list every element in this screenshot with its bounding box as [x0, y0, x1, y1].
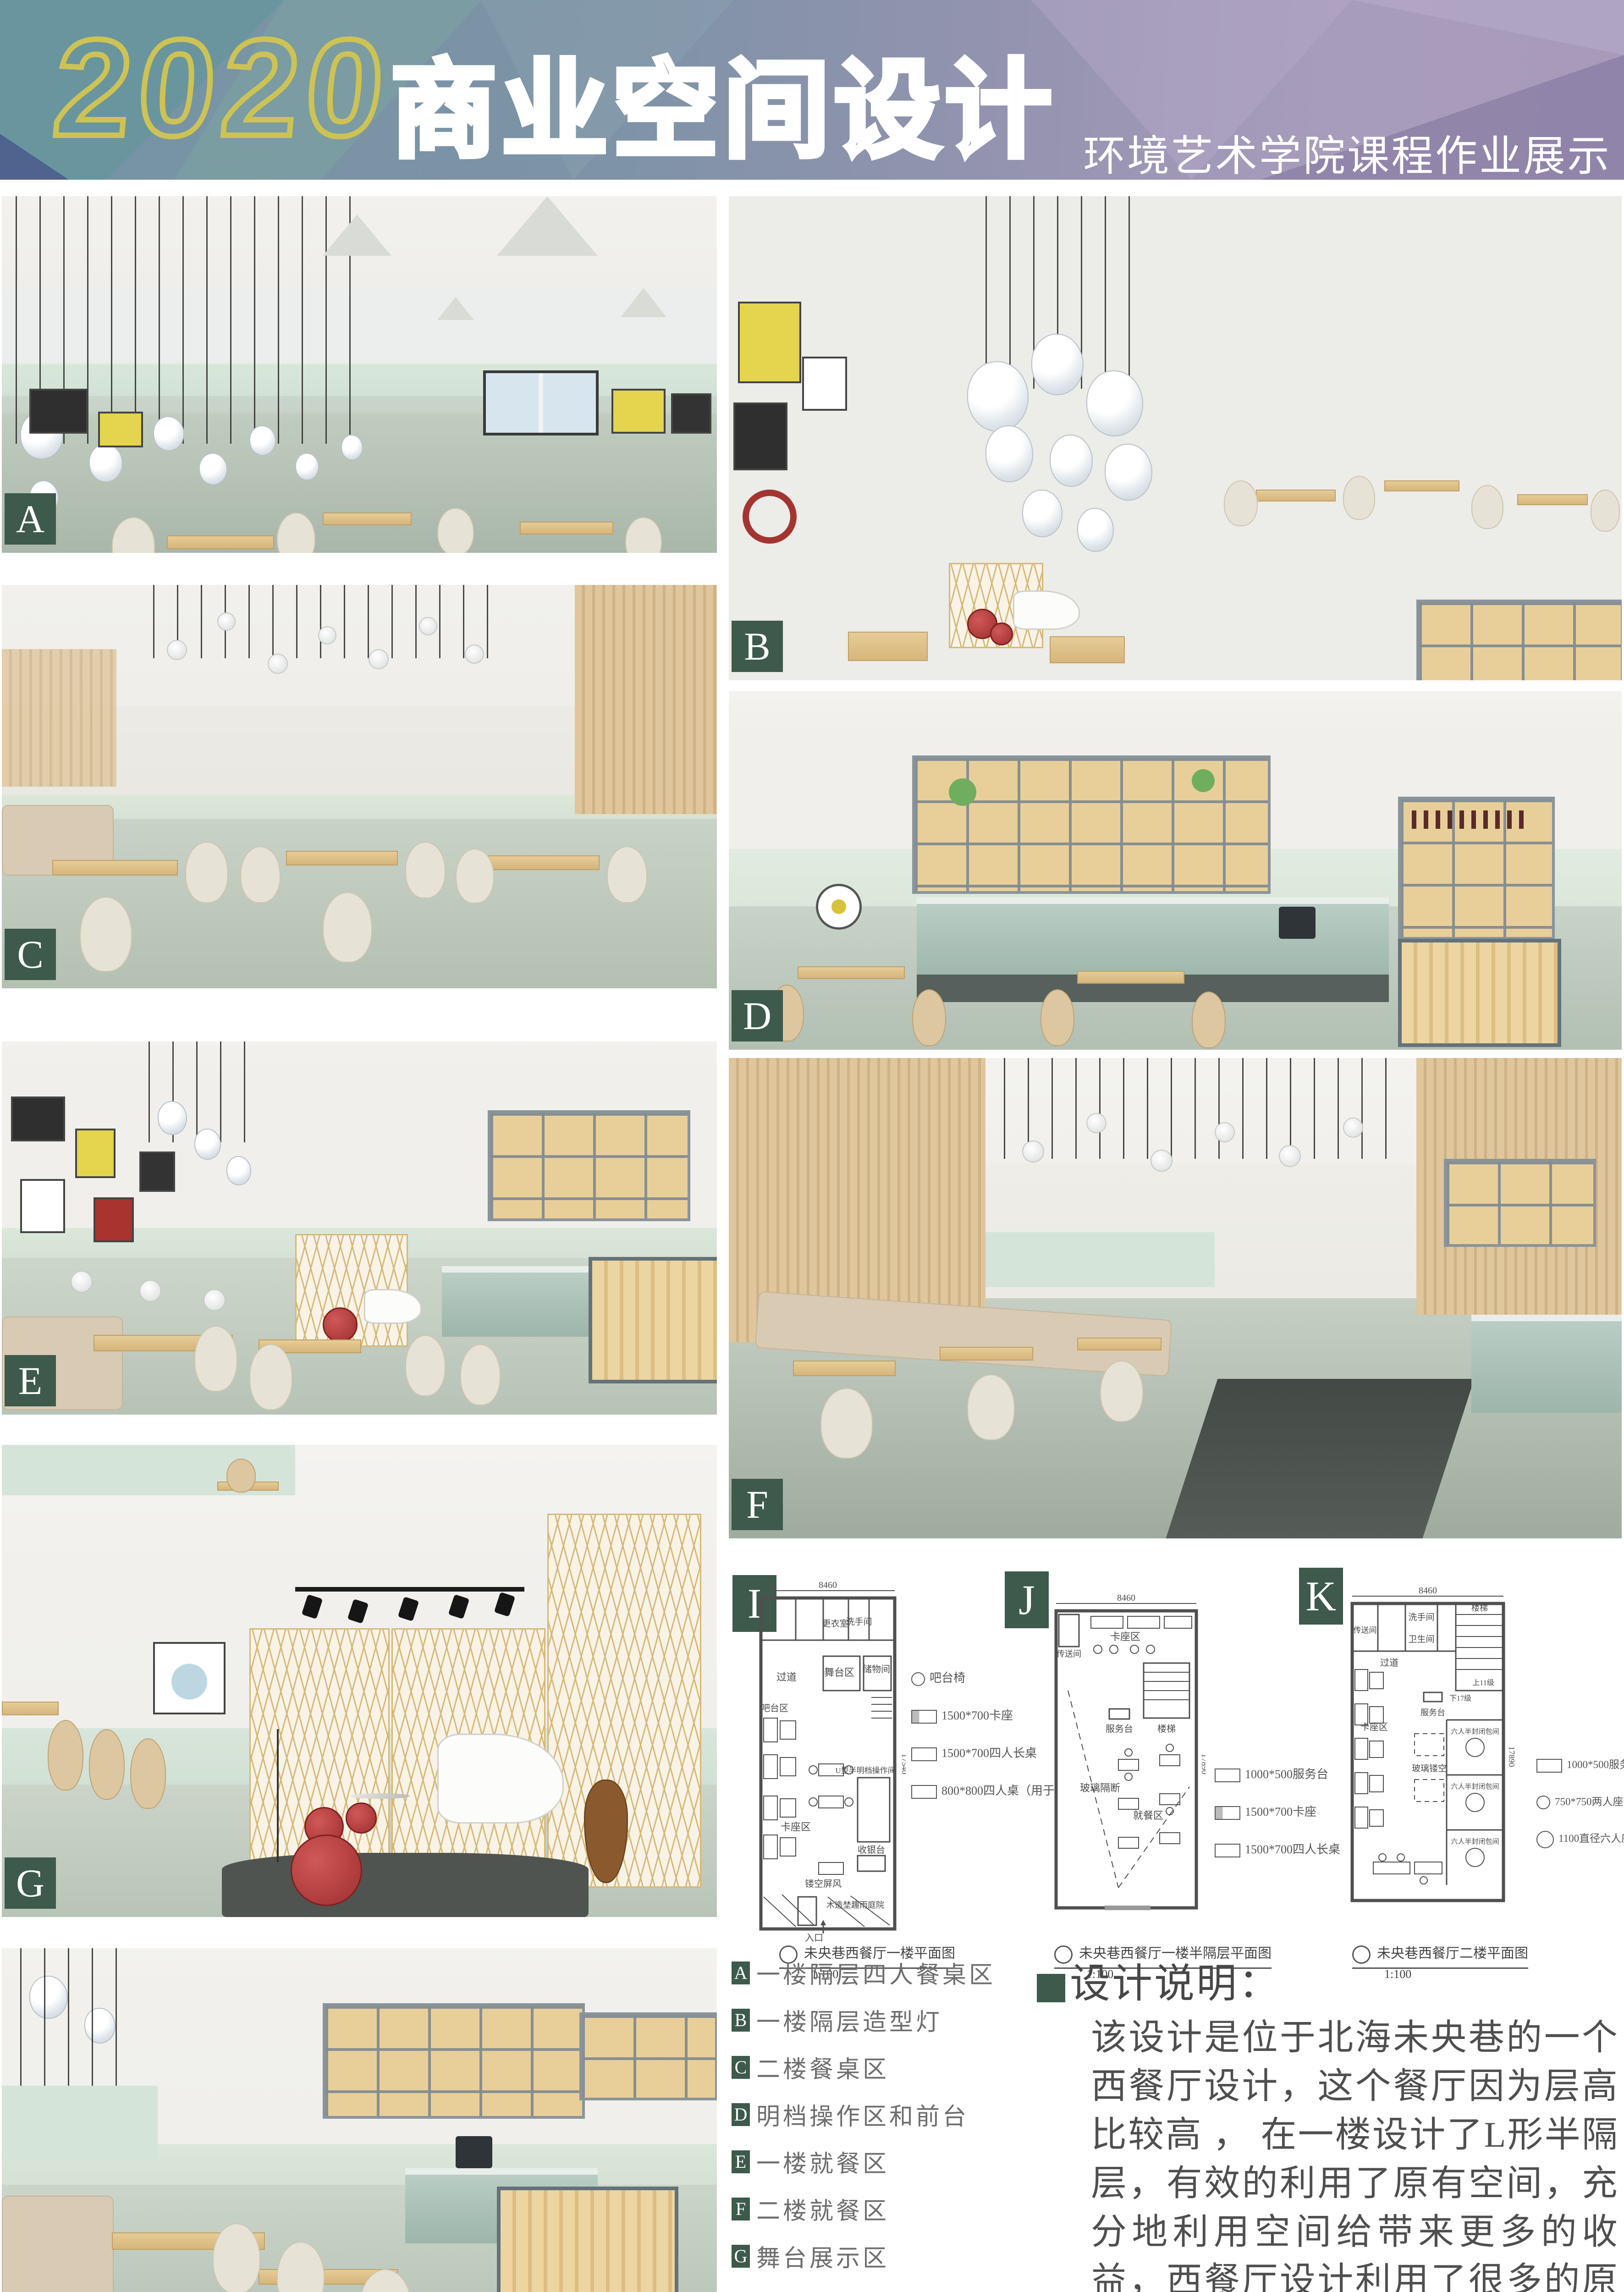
dining-chair	[456, 848, 494, 904]
grand-piano	[364, 1289, 422, 1324]
render-photo-b: B	[729, 196, 1622, 680]
table-icon	[911, 1747, 937, 1761]
crystal-pendant	[341, 435, 363, 460]
legend-row: H一楼就餐区	[732, 2286, 1025, 2292]
track-light-bar	[295, 1587, 524, 1592]
crystal-pendant-lamp	[1086, 370, 1143, 436]
bar-stool	[1192, 992, 1226, 1048]
bar-stool	[912, 989, 946, 1046]
room-label: 六人半封闭包间	[1451, 1728, 1499, 1736]
mezzanine-table	[1256, 490, 1336, 501]
bar-stool	[1040, 989, 1074, 1046]
bar-table	[2, 1702, 59, 1715]
exhibition-poster: 2020 商业空间设计 环境艺术学院课程作业展示	[0, 0, 1624, 2292]
dining-chair	[967, 1374, 1015, 1440]
wall-clock	[816, 884, 862, 930]
legend-text: 一楼隔层造型灯	[756, 2003, 942, 2037]
panel-label-b: B	[732, 621, 783, 672]
dining-chair	[625, 517, 662, 553]
legend-row: F二楼就餐区	[732, 2192, 1025, 2226]
room-label: 洗手间	[846, 1617, 872, 1627]
wall-frame	[11, 1096, 65, 1141]
bar-stool	[48, 1720, 83, 1791]
furniture-item: 1500*700卡座	[911, 1706, 1055, 1724]
round-pendant-bulb	[1279, 1145, 1301, 1167]
tom-drum	[346, 1802, 377, 1834]
wall-frame	[671, 393, 711, 434]
design-notes-body: 该设计是位于北海未央巷的一个西餐厅设计，这个餐厅因为层高比较高 ， 在一楼设计了…	[1091, 2013, 1618, 2292]
drum-kit	[323, 1307, 358, 1342]
mezzanine-scene	[729, 196, 1622, 680]
high-table	[798, 966, 905, 979]
hanging-shelf-unit	[912, 755, 1271, 894]
wood-slat-partition	[2, 649, 116, 787]
floor-plan-k-drawing: 8460 17890 过道 洗手间 卫生间 传送间 卡座区 玻璃镂空 六人半封闭…	[1346, 1587, 1529, 1926]
dining-room-scene	[2, 196, 717, 553]
room-label: 收银台	[858, 1845, 885, 1855]
room-label: 六人半封闭包间	[1451, 1783, 1499, 1791]
furniture-item: 1500*700四人长桌	[1215, 1840, 1340, 1857]
mint-wall-panel	[985, 1232, 1215, 1287]
dining-chair	[405, 1335, 446, 1396]
room-label: 传送间	[1354, 1626, 1377, 1635]
bar-stool	[130, 1738, 166, 1809]
crystal-pendant-lamp	[1105, 444, 1152, 501]
cone-ceiling-lamp-icon	[437, 297, 474, 320]
crystal-pendant	[153, 416, 184, 451]
crystal-pendant	[249, 425, 276, 456]
dining-chair	[1471, 485, 1503, 529]
render-photo-c: C	[2, 585, 717, 988]
dining-table	[323, 512, 412, 525]
dining-table	[52, 860, 178, 876]
round-pendant-bulb	[1215, 1122, 1235, 1142]
furniture-item: 1000*500服务台	[1536, 1756, 1624, 1773]
dim-side: 17890	[1507, 1747, 1516, 1767]
chandelier-bulb	[167, 640, 187, 660]
render-photo-g: G	[2, 1445, 717, 1917]
wall-frame	[98, 412, 143, 447]
first-floor-table	[1050, 636, 1125, 663]
mezzanine-chair	[226, 1459, 256, 1493]
dining-chair	[240, 846, 281, 903]
table-icon	[1215, 1844, 1240, 1857]
wall-sconce-lamp	[204, 1289, 226, 1311]
wall-frame	[94, 1197, 134, 1242]
crystal-pendant-lamp	[1050, 435, 1093, 487]
mezzanine-table	[1517, 494, 1588, 505]
pos-terminal	[1279, 907, 1316, 939]
legend-row: E一楼就餐区	[732, 2144, 1025, 2179]
room-label: 玻璃镂空	[1412, 1763, 1447, 1774]
dining-chair	[607, 846, 647, 903]
room-label: 洗手间	[1408, 1612, 1434, 1622]
round-pendant-bulb	[1086, 1113, 1107, 1133]
wood-slat-wall	[575, 585, 717, 814]
room-label: 楼梯	[1157, 1724, 1176, 1734]
panel-label-e: E	[5, 1355, 56, 1406]
dining-chair	[80, 897, 132, 972]
dining-chair	[277, 2242, 325, 2292]
crystal-pendant-lamp	[985, 425, 1033, 482]
room-label: 更衣室	[822, 1619, 848, 1629]
floor-plan-i-drawing: 8460 17540 过道 舞台区 储物间 吧台区 卡座区 U型半明档操作间 收…	[754, 1581, 906, 1943]
shelf-unit	[1416, 600, 1622, 680]
room-label: 卫生间	[1408, 1634, 1434, 1644]
counter-icon	[1215, 1769, 1240, 1782]
render-photo-a: A	[2, 196, 717, 553]
spotlight-icon	[398, 1597, 419, 1621]
bar-stool	[89, 1729, 125, 1800]
cone-ceiling-lamp-icon	[621, 288, 666, 317]
banquette-sofa	[2, 2196, 114, 2292]
two-seat-icon	[1536, 1796, 1550, 1809]
dim-side: 17540	[900, 1754, 906, 1774]
dining-table	[520, 522, 613, 534]
panel-label-f: F	[732, 1479, 783, 1530]
wall-sconce-lamp	[139, 1280, 161, 1302]
render-photo-d: D	[729, 691, 1622, 1050]
plan-k-furniture-legend: 1000*500服务台 750*750两人座 1100直径六人座	[1536, 1756, 1624, 1868]
plan-j-furniture-legend: 1000*500服务台 1500*700卡座 1500*700四人长桌	[1215, 1765, 1340, 1878]
panel-label-c: C	[5, 929, 56, 980]
front-cabinet	[589, 1257, 717, 1383]
render-photo-e: E	[2, 1041, 717, 1415]
first-floor-table	[848, 632, 928, 661]
round-table-icon	[1536, 1831, 1554, 1848]
dining-chair	[1100, 1361, 1143, 1422]
room-label: 入口	[805, 1933, 823, 1943]
drum-kit	[990, 623, 1013, 645]
dark-floor-tiles	[1166, 1379, 1474, 1538]
room-label: 卡座区	[781, 1821, 811, 1833]
chandelier-bulb	[465, 645, 484, 664]
dining-chair	[213, 2223, 260, 2292]
header-banner: 2020 商业空间设计 环境艺术学院课程作业展示	[0, 0, 1624, 180]
chandelier-bulb	[419, 617, 437, 635]
dining-table	[167, 535, 274, 549]
crystal-pendant	[158, 1101, 187, 1135]
room-label: 楼梯	[1471, 1603, 1488, 1613]
legend-text: 二楼就餐区	[756, 2192, 889, 2226]
shelf-unit	[488, 1110, 690, 1221]
room-label: 传送间	[1057, 1649, 1081, 1658]
furniture-item: 1000*500服务台	[1215, 1765, 1340, 1782]
round-pendant-bulb	[1343, 1118, 1363, 1138]
furniture-item: 吧台椅	[911, 1669, 1055, 1686]
dining-table	[940, 1347, 1033, 1361]
dim-total: 8460	[1117, 1594, 1135, 1603]
plan-k-caption: 未央巷西餐厅二楼平面图	[1352, 1942, 1528, 1969]
wine-bottles	[1412, 810, 1526, 829]
second-floor-dining-scene	[729, 1058, 1622, 1538]
green-square-bullet-icon	[1037, 1974, 1065, 2002]
mint-wall-panel	[2, 2086, 158, 2159]
wall-frame	[802, 357, 847, 411]
dining-chair	[194, 1326, 237, 1392]
chandelier-cords	[153, 585, 501, 658]
bar-counter	[442, 1266, 593, 1337]
legend-text: 明档操作区和前台	[756, 2097, 969, 2132]
furniture-item: 800*800四人桌（用于	[911, 1781, 1055, 1799]
legend-key: G	[732, 2245, 750, 2268]
window	[483, 370, 599, 435]
room-label: 镂空屏风	[805, 1879, 842, 1889]
mic-stand	[277, 1729, 279, 1862]
legend-text: 一楼就餐区	[756, 2144, 889, 2179]
round-pendant-bulb	[1151, 1150, 1173, 1172]
round-pendant-bulb	[1022, 1140, 1044, 1163]
crystal-pendant-lamp	[1077, 508, 1114, 552]
hanging-shelf-unit	[323, 2003, 585, 2119]
booth-icon	[1215, 1806, 1240, 1820]
dining-table	[488, 855, 600, 870]
year-text: 2020	[48, 8, 397, 167]
wall-frame	[75, 1129, 116, 1178]
legend-text: 舞台展示区	[756, 2239, 889, 2273]
mezzanine-table	[1384, 480, 1459, 491]
legend-key: E	[732, 2150, 750, 2173]
room-label: 木造埜趣雨庭院	[826, 1901, 884, 1910]
crystal-pendant	[226, 1156, 251, 1185]
pos-terminal	[456, 2136, 492, 2168]
stool-icon	[911, 1672, 925, 1686]
chandelier-bulb	[369, 649, 389, 669]
room-label: U型半明档操作间	[835, 1766, 895, 1775]
wall-shelf	[1444, 1159, 1596, 1247]
panel-label-a: A	[5, 493, 56, 545]
table-icon	[911, 1785, 937, 1799]
crystal-pendant	[194, 1129, 221, 1160]
furniture-item: 1500*700卡座	[1215, 1802, 1340, 1820]
room-label: 卡座区	[1360, 1722, 1388, 1732]
legend-key: B	[732, 2009, 750, 2032]
bass-drum	[291, 1835, 362, 1906]
spotlight-icon	[302, 1594, 323, 1619]
dining-chair	[405, 842, 446, 898]
dining-table	[1077, 1338, 1162, 1350]
room-label: 舞台区	[824, 1667, 854, 1678]
dining-chair	[277, 512, 315, 553]
first-floor-dining-scene	[2, 1041, 717, 1415]
bar-counter	[917, 898, 1389, 982]
crystal-pendant-lamp	[1022, 490, 1062, 537]
counter-icon	[1536, 1759, 1562, 1773]
spotlight-icon	[347, 1599, 369, 1624]
dining-chair	[1591, 490, 1620, 532]
first-floor-dining-scene	[2, 1948, 717, 2292]
room-label: 就餐区	[1133, 1810, 1163, 1821]
dim-total: 8460	[819, 1581, 837, 1590]
room-label: 过道	[776, 1671, 797, 1683]
furniture-item: 1500*700四人长桌	[911, 1744, 1055, 1761]
booth-icon	[911, 1710, 937, 1724]
legend-row: D明档操作区和前台	[732, 2097, 1025, 2132]
dining-chair	[323, 892, 372, 963]
legend-row: C二楼餐桌区	[732, 2050, 1025, 2084]
room-label: 过道	[1380, 1658, 1398, 1668]
dining-chair	[1343, 476, 1375, 520]
legend-text: 二楼餐桌区	[756, 2050, 889, 2084]
dining-chair	[112, 517, 155, 553]
potted-plant	[949, 778, 976, 806]
front-cabinet	[497, 2187, 678, 2292]
legend-row: B一楼隔层造型灯	[732, 2003, 1025, 2037]
crystal-pendant	[295, 453, 319, 480]
legend-row: G舞台展示区	[732, 2239, 1025, 2273]
front-cabinet	[1398, 939, 1561, 1047]
room-label: 六人半封闭包间	[1451, 1838, 1499, 1846]
spotlight-icon	[494, 1592, 516, 1617]
service-counter	[1471, 1315, 1622, 1413]
crystal-pendant-lamp	[967, 361, 1029, 432]
legend-row: A一楼隔层四人餐桌区	[732, 1956, 1025, 1990]
open-kitchen-bar-scene	[729, 691, 1622, 1050]
plan-k-scale: 1:100	[1384, 1967, 1411, 1981]
wall-frame	[29, 389, 88, 434]
dining-chair	[437, 508, 474, 553]
legend-key: D	[732, 2103, 750, 2126]
cymbal	[350, 1793, 410, 1799]
room-label: 上11级	[1472, 1679, 1494, 1687]
poster-title: 商业空间设计	[391, 24, 1056, 178]
grand-piano	[1013, 590, 1080, 630]
crystal-pendant	[89, 444, 123, 482]
design-notes-title: 设计说明：	[1037, 1951, 1281, 2009]
crystal-pendant	[199, 453, 227, 485]
wall-frame	[20, 1179, 65, 1233]
wall-frame	[738, 302, 801, 383]
dining-table	[793, 1361, 896, 1376]
pendant-cords	[1004, 1058, 1398, 1159]
panel-label-j: J	[1005, 1571, 1049, 1628]
dim-total: 8460	[1419, 1587, 1437, 1596]
room-label: 服务台	[1106, 1724, 1133, 1734]
room-label: 卡座区	[1110, 1631, 1140, 1642]
legend-key: A	[732, 1961, 750, 1984]
furniture-item: 1100直径六人座	[1536, 1829, 1624, 1848]
dining-chair	[460, 1344, 501, 1405]
room-label: 服务台	[1420, 1708, 1445, 1717]
dining-chair	[1224, 480, 1258, 526]
cake-painting	[153, 1642, 226, 1714]
panel-legend: A一楼隔层四人餐桌区 B一楼隔层造型灯 C二楼餐桌区 D明档操作区和前台 E一楼…	[732, 1956, 1025, 2292]
crystal-pendant-lamp	[1031, 334, 1084, 395]
room-label: 吧台区	[761, 1703, 788, 1713]
potted-plant	[1192, 769, 1215, 792]
room-label: 下17级	[1449, 1694, 1471, 1702]
dining-table	[286, 851, 398, 865]
panel-label-k: K	[1299, 1568, 1343, 1625]
chandelier-bulb	[217, 612, 236, 631]
render-photo-f: F	[729, 1058, 1622, 1538]
wall-sconce-lamp	[71, 1271, 93, 1293]
plan-i-furniture-legend: 吧台椅 1500*700卡座 1500*700四人长桌 800*800四人桌（用…	[911, 1669, 1055, 1819]
legend-key: F	[732, 2198, 750, 2220]
wine-shelf	[579, 2012, 717, 2100]
chandelier-bulb	[318, 626, 336, 645]
legend-text: 一楼隔层四人餐桌区	[756, 1956, 996, 1990]
dining-chair	[249, 1344, 292, 1410]
high-table	[1077, 971, 1184, 984]
wall-frame	[139, 1152, 175, 1192]
cone-ceiling-lamp-icon	[497, 196, 598, 256]
poster-subtitle: 环境艺术学院课程作业展示	[1083, 122, 1611, 180]
wall-frame	[611, 389, 666, 434]
furniture-item: 750*750两人座	[1536, 1793, 1624, 1810]
panel-label-d: D	[732, 990, 783, 1041]
caption-dot-icon	[1352, 1945, 1371, 1964]
wall-frame	[733, 402, 787, 470]
render-photo-h: H	[2, 1948, 717, 2292]
room-label: 储物间	[863, 1664, 890, 1675]
chandelier-bulb	[268, 654, 288, 674]
dim-side: 17890	[1200, 1754, 1206, 1774]
floor-plan-j-drawing: 8460 17890 传送间 卡座区 楼梯 服务台 玻璃隔断 就餐区	[1050, 1594, 1206, 1934]
stage-display-scene	[2, 1445, 717, 1917]
dining-chair	[185, 842, 228, 903]
second-floor-dining-scene	[2, 585, 717, 988]
dining-chair	[820, 1388, 873, 1459]
pendant-cords	[20, 1948, 139, 2099]
panel-label-g: G	[5, 1857, 56, 1909]
legend-text: 一楼就餐区	[756, 2286, 889, 2292]
red-wall-decor	[743, 490, 797, 544]
legend-key: C	[732, 2056, 750, 2079]
stage-platform	[222, 1853, 589, 1917]
spotlight-icon	[448, 1594, 470, 1619]
room-label: 玻璃隔断	[1080, 1782, 1120, 1794]
